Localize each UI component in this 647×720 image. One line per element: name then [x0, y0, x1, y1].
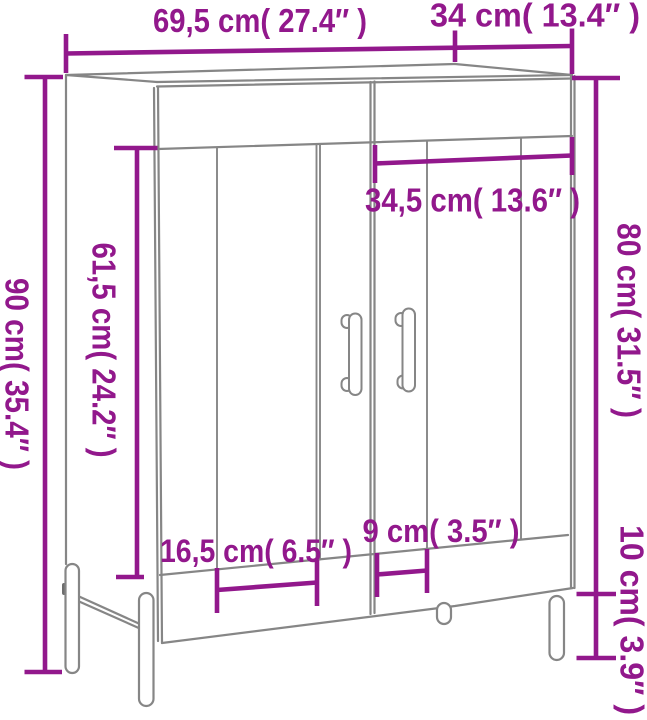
cabinet-dimension-drawing: 69,5 cm( 27.4″ ) 34 cm( 13.4″ ) 90 cm( 3…: [0, 0, 647, 720]
right-groove-span-dimension-line: [377, 549, 427, 597]
width34-main-line: [375, 156, 572, 164]
right-door-handle: [396, 309, 416, 392]
front-right-leg: [550, 596, 565, 660]
back-left-leg: [66, 564, 80, 673]
dimension-diagram-canvas: 69,5 cm( 27.4″ ) 34 cm( 13.4″ ) 90 cm( 3…: [0, 0, 647, 720]
overall-height-label: 90 cm( 35.4″ ): [0, 278, 36, 470]
top-back-edge: [66, 64, 455, 75]
span9-main-line: [377, 571, 427, 575]
door-width-dimension-line: [375, 137, 572, 183]
door-height-label: 61,5 cm( 24.2″ ): [86, 243, 123, 458]
left-stretcher-bar-top: [78, 596, 141, 625]
top-left-receding-edge: [66, 75, 157, 82]
back-middle-leg-tip: [437, 603, 451, 624]
front-left-leg: [139, 593, 154, 706]
body-height-label: 80 cm( 31.5″ ): [611, 223, 647, 418]
door-width-label: 34,5 cm( 13.6″ ): [365, 182, 580, 219]
span16-main-line: [217, 583, 317, 591]
right-handle-bar: [403, 309, 416, 392]
top-right-receding-edge: [455, 64, 572, 75]
leg-height-label: 10 cm( 3.9″ ): [614, 525, 647, 715]
cabinet-top-panel: [66, 64, 572, 87]
left-door-handle: [342, 314, 362, 396]
bottom-front-edge: [162, 588, 573, 643]
top-width-label: 69,5 cm( 27.4″ ): [153, 2, 367, 39]
drawer-band-bottom-line: [158, 136, 572, 149]
top-depth-label: 34 cm( 13.4″ ): [430, 0, 640, 34]
leg-height-dimension-line: [577, 594, 617, 658]
front-left-edge-outer: [154, 88, 158, 641]
top-panel-underside-edge: [157, 79, 572, 87]
right-groove-span-label: 9 cm( 3.5″ ): [363, 513, 520, 549]
top-front-edge: [157, 75, 572, 82]
top-dim-main-line: [66, 46, 572, 54]
door-handles: [342, 309, 416, 396]
left-groove-span-label: 16,5 cm( 6.5″ ): [160, 533, 352, 569]
left-handle-bar: [349, 314, 362, 396]
left-stretcher-bar-bottom: [78, 601, 141, 629]
